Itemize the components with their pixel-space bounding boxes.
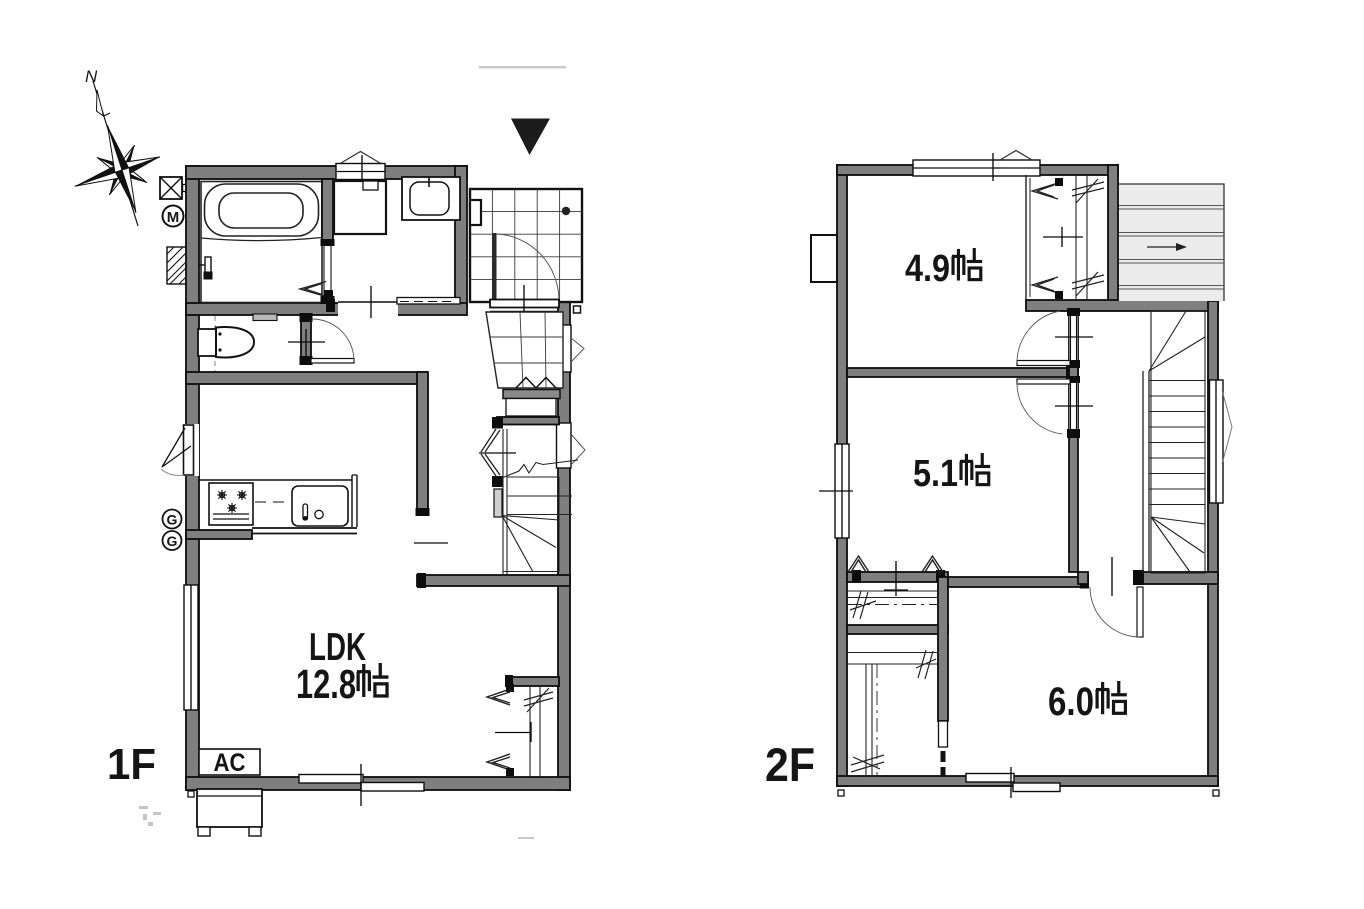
svg-text:1F: 1F xyxy=(107,740,156,789)
svg-text:G: G xyxy=(167,533,178,549)
svg-text:M: M xyxy=(167,209,180,226)
svg-text:6.0: 6.0 xyxy=(1048,680,1094,724)
svg-text:N: N xyxy=(85,67,98,86)
svg-text:4.9: 4.9 xyxy=(905,248,950,290)
svg-text:2F: 2F xyxy=(765,738,815,791)
svg-text:AC: AC xyxy=(214,749,246,777)
svg-text:12.8: 12.8 xyxy=(296,661,356,707)
svg-text:5.1: 5.1 xyxy=(913,453,958,495)
svg-text:G: G xyxy=(167,512,178,528)
